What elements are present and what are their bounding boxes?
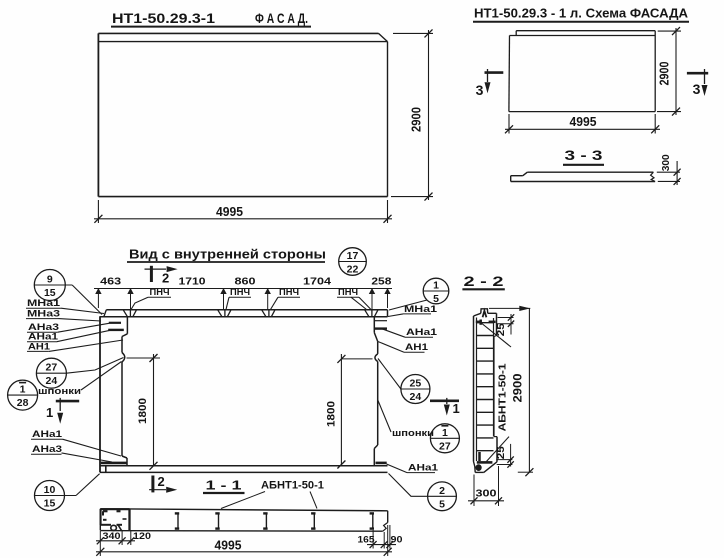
svg-text:1: 1 [442, 427, 448, 439]
svg-text:258: 258 [371, 276, 391, 288]
svg-text:МНа1: МНа1 [404, 303, 437, 314]
svg-text:25: 25 [496, 446, 507, 460]
svg-text:АБНТ1-50-1: АБНТ1-50-1 [261, 480, 324, 492]
svg-text:АНа3: АНа3 [32, 443, 62, 454]
svg-text:АБНТ1-50-1: АБНТ1-50-1 [497, 363, 508, 432]
svg-text:АНа1: АНа1 [408, 462, 438, 473]
svg-text:3 - 3: 3 - 3 [565, 147, 603, 163]
svg-text:2: 2 [162, 271, 169, 286]
svg-text:2: 2 [158, 474, 165, 489]
svg-text:24: 24 [410, 391, 422, 403]
svg-text:МНа3: МНа3 [27, 308, 60, 319]
svg-text:1 - 1: 1 - 1 [206, 479, 242, 493]
svg-text:25: 25 [496, 323, 507, 337]
svg-text:Ф А С А Д.: Ф А С А Д. [255, 11, 308, 26]
svg-text:3: 3 [693, 81, 701, 97]
svg-text:Вид с внутренней стороны: Вид с внутренней стороны [129, 246, 326, 261]
svg-text:шпонки: шпонки [38, 385, 81, 396]
svg-text:1: 1 [46, 405, 53, 420]
svg-text:МНа1: МНа1 [27, 297, 60, 308]
svg-text:ПНЧ: ПНЧ [150, 287, 170, 297]
svg-text:АНа1: АНа1 [32, 428, 62, 439]
svg-text:5: 5 [439, 498, 445, 510]
svg-text:90: 90 [391, 535, 403, 545]
svg-text:ПНЧ: ПНЧ [230, 287, 250, 297]
svg-text:4995: 4995 [215, 539, 242, 553]
svg-text:300: 300 [661, 154, 672, 172]
svg-text:340: 340 [103, 531, 121, 541]
svg-text:АНа1: АНа1 [406, 326, 437, 337]
svg-text:15: 15 [44, 498, 56, 510]
svg-text:9: 9 [47, 274, 53, 286]
svg-text:1: 1 [20, 384, 26, 396]
svg-text:ПНЧ: ПНЧ [279, 287, 299, 297]
svg-text:860: 860 [235, 276, 256, 288]
svg-text:1: 1 [453, 401, 460, 416]
svg-text:1800: 1800 [326, 401, 338, 427]
svg-text:4995: 4995 [570, 115, 597, 129]
svg-text:2900: 2900 [410, 107, 424, 132]
svg-text:27: 27 [439, 440, 451, 452]
svg-text:25: 25 [410, 378, 422, 390]
svg-text:НТ1-50.29.3-1: НТ1-50.29.3-1 [112, 11, 216, 26]
svg-text:2900: 2900 [511, 373, 525, 402]
svg-text:10: 10 [44, 484, 56, 496]
svg-text:2900: 2900 [658, 61, 672, 85]
svg-text:шпонки: шпонки [392, 427, 434, 438]
svg-text:2 - 2: 2 - 2 [464, 274, 504, 289]
svg-text:1: 1 [433, 280, 439, 292]
svg-text:165: 165 [358, 535, 375, 545]
svg-text:ПНЧ: ПНЧ [338, 287, 358, 297]
svg-text:22: 22 [347, 264, 359, 276]
svg-text:300: 300 [476, 488, 497, 500]
svg-text:17: 17 [347, 250, 359, 262]
svg-text:АН1: АН1 [405, 341, 428, 352]
svg-text:НТ1-50.29.3 - 1 л. Схема ФАСА: НТ1-50.29.3 - 1 л. Схема ФАСАДА [474, 7, 688, 21]
svg-text:1710: 1710 [179, 276, 206, 288]
svg-text:120: 120 [133, 531, 151, 541]
svg-text:463: 463 [100, 276, 121, 288]
svg-text:3: 3 [476, 82, 484, 98]
svg-text:28: 28 [17, 397, 29, 409]
svg-text:АН1: АН1 [28, 340, 50, 351]
svg-text:1800: 1800 [137, 398, 149, 424]
svg-text:2: 2 [439, 485, 445, 497]
svg-text:27: 27 [46, 362, 58, 374]
svg-text:4995: 4995 [216, 205, 243, 219]
svg-text:1704: 1704 [303, 276, 331, 288]
